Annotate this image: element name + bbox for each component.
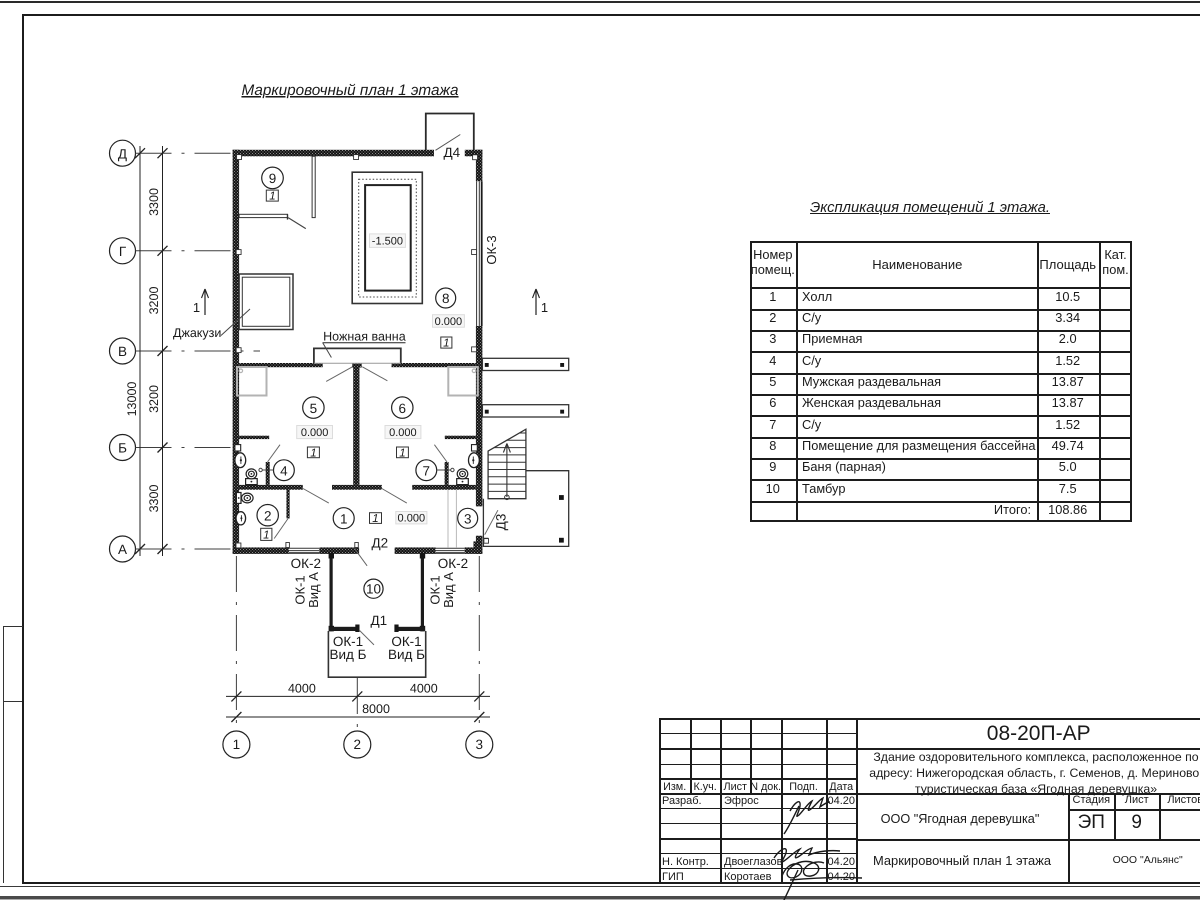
svg-text:4000: 4000: [410, 682, 438, 696]
svg-text:1: 1: [372, 513, 378, 525]
svg-text:Д4: Д4: [444, 145, 461, 160]
svg-text:1: 1: [541, 300, 548, 315]
svg-text:0.000: 0.000: [398, 513, 426, 525]
svg-text:4: 4: [280, 463, 288, 478]
svg-text:6: 6: [399, 401, 407, 416]
svg-text:0.000: 0.000: [435, 316, 463, 328]
svg-text:ОК-2: ОК-2: [291, 556, 321, 571]
svg-text:Д: Д: [118, 146, 127, 161]
svg-text:ОК-2: ОК-2: [438, 556, 468, 571]
svg-text:2: 2: [264, 508, 272, 523]
svg-text:8: 8: [442, 291, 450, 306]
svg-text:9: 9: [269, 171, 277, 186]
svg-text:3200: 3200: [147, 287, 161, 315]
svg-text:Б: Б: [118, 441, 127, 456]
svg-text:Г: Г: [119, 244, 127, 259]
svg-text:7: 7: [423, 463, 431, 478]
svg-text:1: 1: [193, 300, 200, 315]
svg-text:8000: 8000: [362, 702, 390, 716]
svg-text:3200: 3200: [147, 385, 161, 413]
svg-text:3300: 3300: [147, 485, 161, 513]
svg-text:13000: 13000: [125, 382, 139, 417]
svg-text:3: 3: [476, 737, 484, 752]
svg-text:Вид Б: Вид Б: [388, 647, 425, 662]
svg-text:Вид А: Вид А: [306, 572, 321, 608]
svg-text:Вид Б: Вид Б: [329, 647, 366, 662]
svg-text:1: 1: [443, 338, 449, 350]
svg-text:ОК-3: ОК-3: [484, 235, 499, 264]
svg-text:0.000: 0.000: [389, 427, 417, 439]
svg-text:1: 1: [263, 530, 269, 542]
svg-text:1: 1: [340, 511, 348, 526]
svg-text:Ножная ванна: Ножная ванна: [323, 330, 406, 344]
svg-text:1: 1: [233, 737, 241, 752]
svg-text:0.000: 0.000: [301, 427, 329, 439]
svg-text:1: 1: [310, 447, 316, 459]
svg-text:3: 3: [464, 512, 472, 527]
svg-text:3300: 3300: [147, 188, 161, 216]
svg-text:Джакузи: Джакузи: [173, 326, 221, 340]
svg-text:4000: 4000: [288, 682, 316, 696]
svg-text:5: 5: [310, 401, 318, 416]
svg-text:1: 1: [269, 191, 275, 203]
svg-text:Вид А: Вид А: [441, 572, 456, 608]
svg-text:-1.500: -1.500: [372, 236, 403, 248]
svg-text:Д2: Д2: [372, 535, 389, 550]
svg-text:Д1: Д1: [371, 613, 388, 628]
svg-text:В: В: [118, 344, 127, 359]
svg-text:Маркировочный план 1 этажа: Маркировочный план 1 этажа: [241, 82, 458, 99]
svg-text:10: 10: [366, 582, 381, 597]
svg-text:2: 2: [354, 737, 362, 752]
svg-text:1: 1: [399, 447, 405, 459]
svg-text:А: А: [118, 542, 127, 557]
svg-text:Д3: Д3: [494, 514, 509, 531]
